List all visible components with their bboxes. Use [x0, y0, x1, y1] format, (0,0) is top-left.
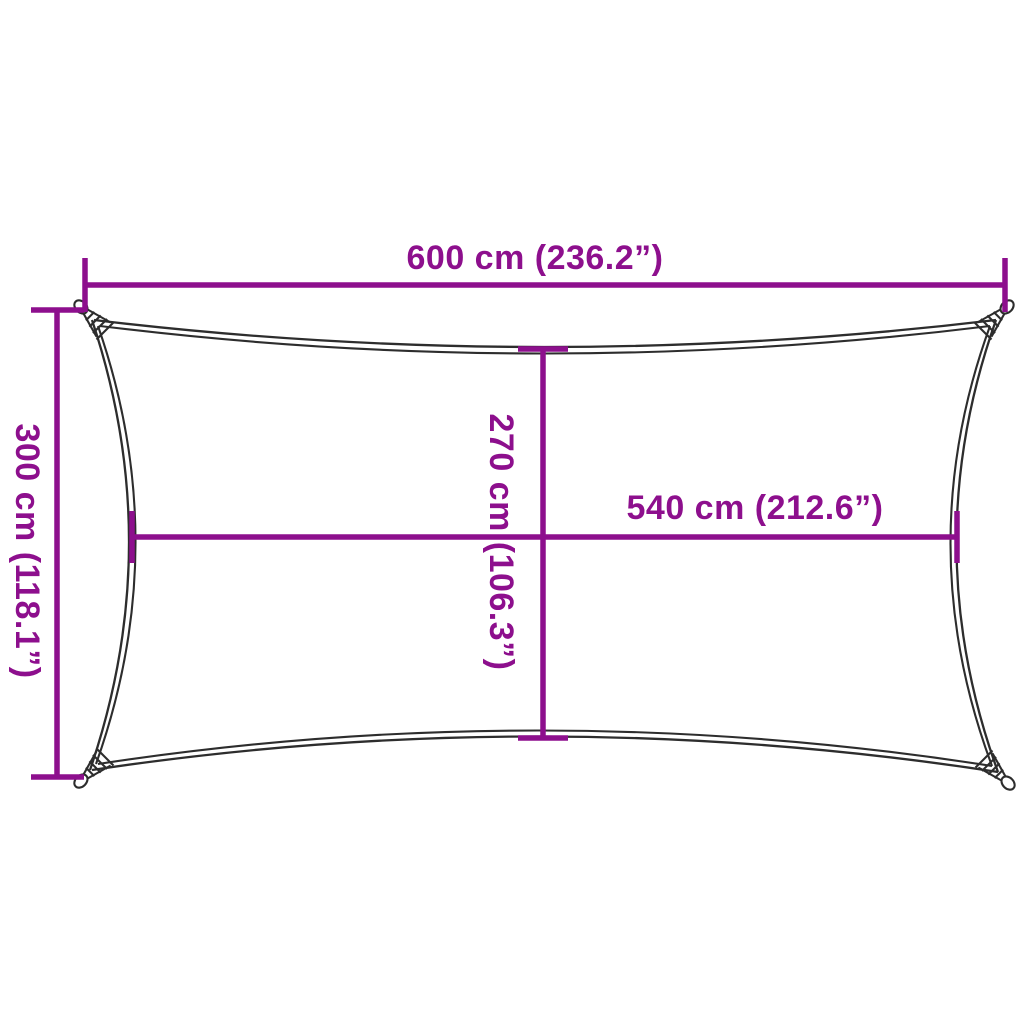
sail-corner-bottom-left — [67, 749, 113, 795]
sail-corner-top-left — [67, 293, 113, 339]
dimension-label-overall-width: 600 cm (236.2”) — [335, 238, 735, 278]
dimension-line-inner-height — [518, 349, 568, 738]
sail-corner-bottom-right — [976, 751, 1022, 797]
corner-ring-icon — [999, 774, 1017, 792]
dimension-label-inner-height: 270 cm (106.3”) — [481, 392, 521, 692]
corner-stitch — [86, 312, 94, 320]
sail-edge-bottom-outer — [92, 736, 998, 772]
dimension-label-overall-height: 300 cm (118.1”) — [7, 401, 47, 701]
product-dimension-image: 600 cm (236.2”) 300 cm (118.1”) 270 cm (… — [0, 0, 1024, 1024]
sail-edge-top-outer — [94, 320, 996, 347]
sail-edge-right-outer — [956, 320, 998, 772]
sail-edge-left-outer — [90, 320, 129, 770]
dimension-label-inner-width: 540 cm (212.6”) — [555, 488, 955, 528]
sail-corner-top-right — [975, 293, 1021, 339]
